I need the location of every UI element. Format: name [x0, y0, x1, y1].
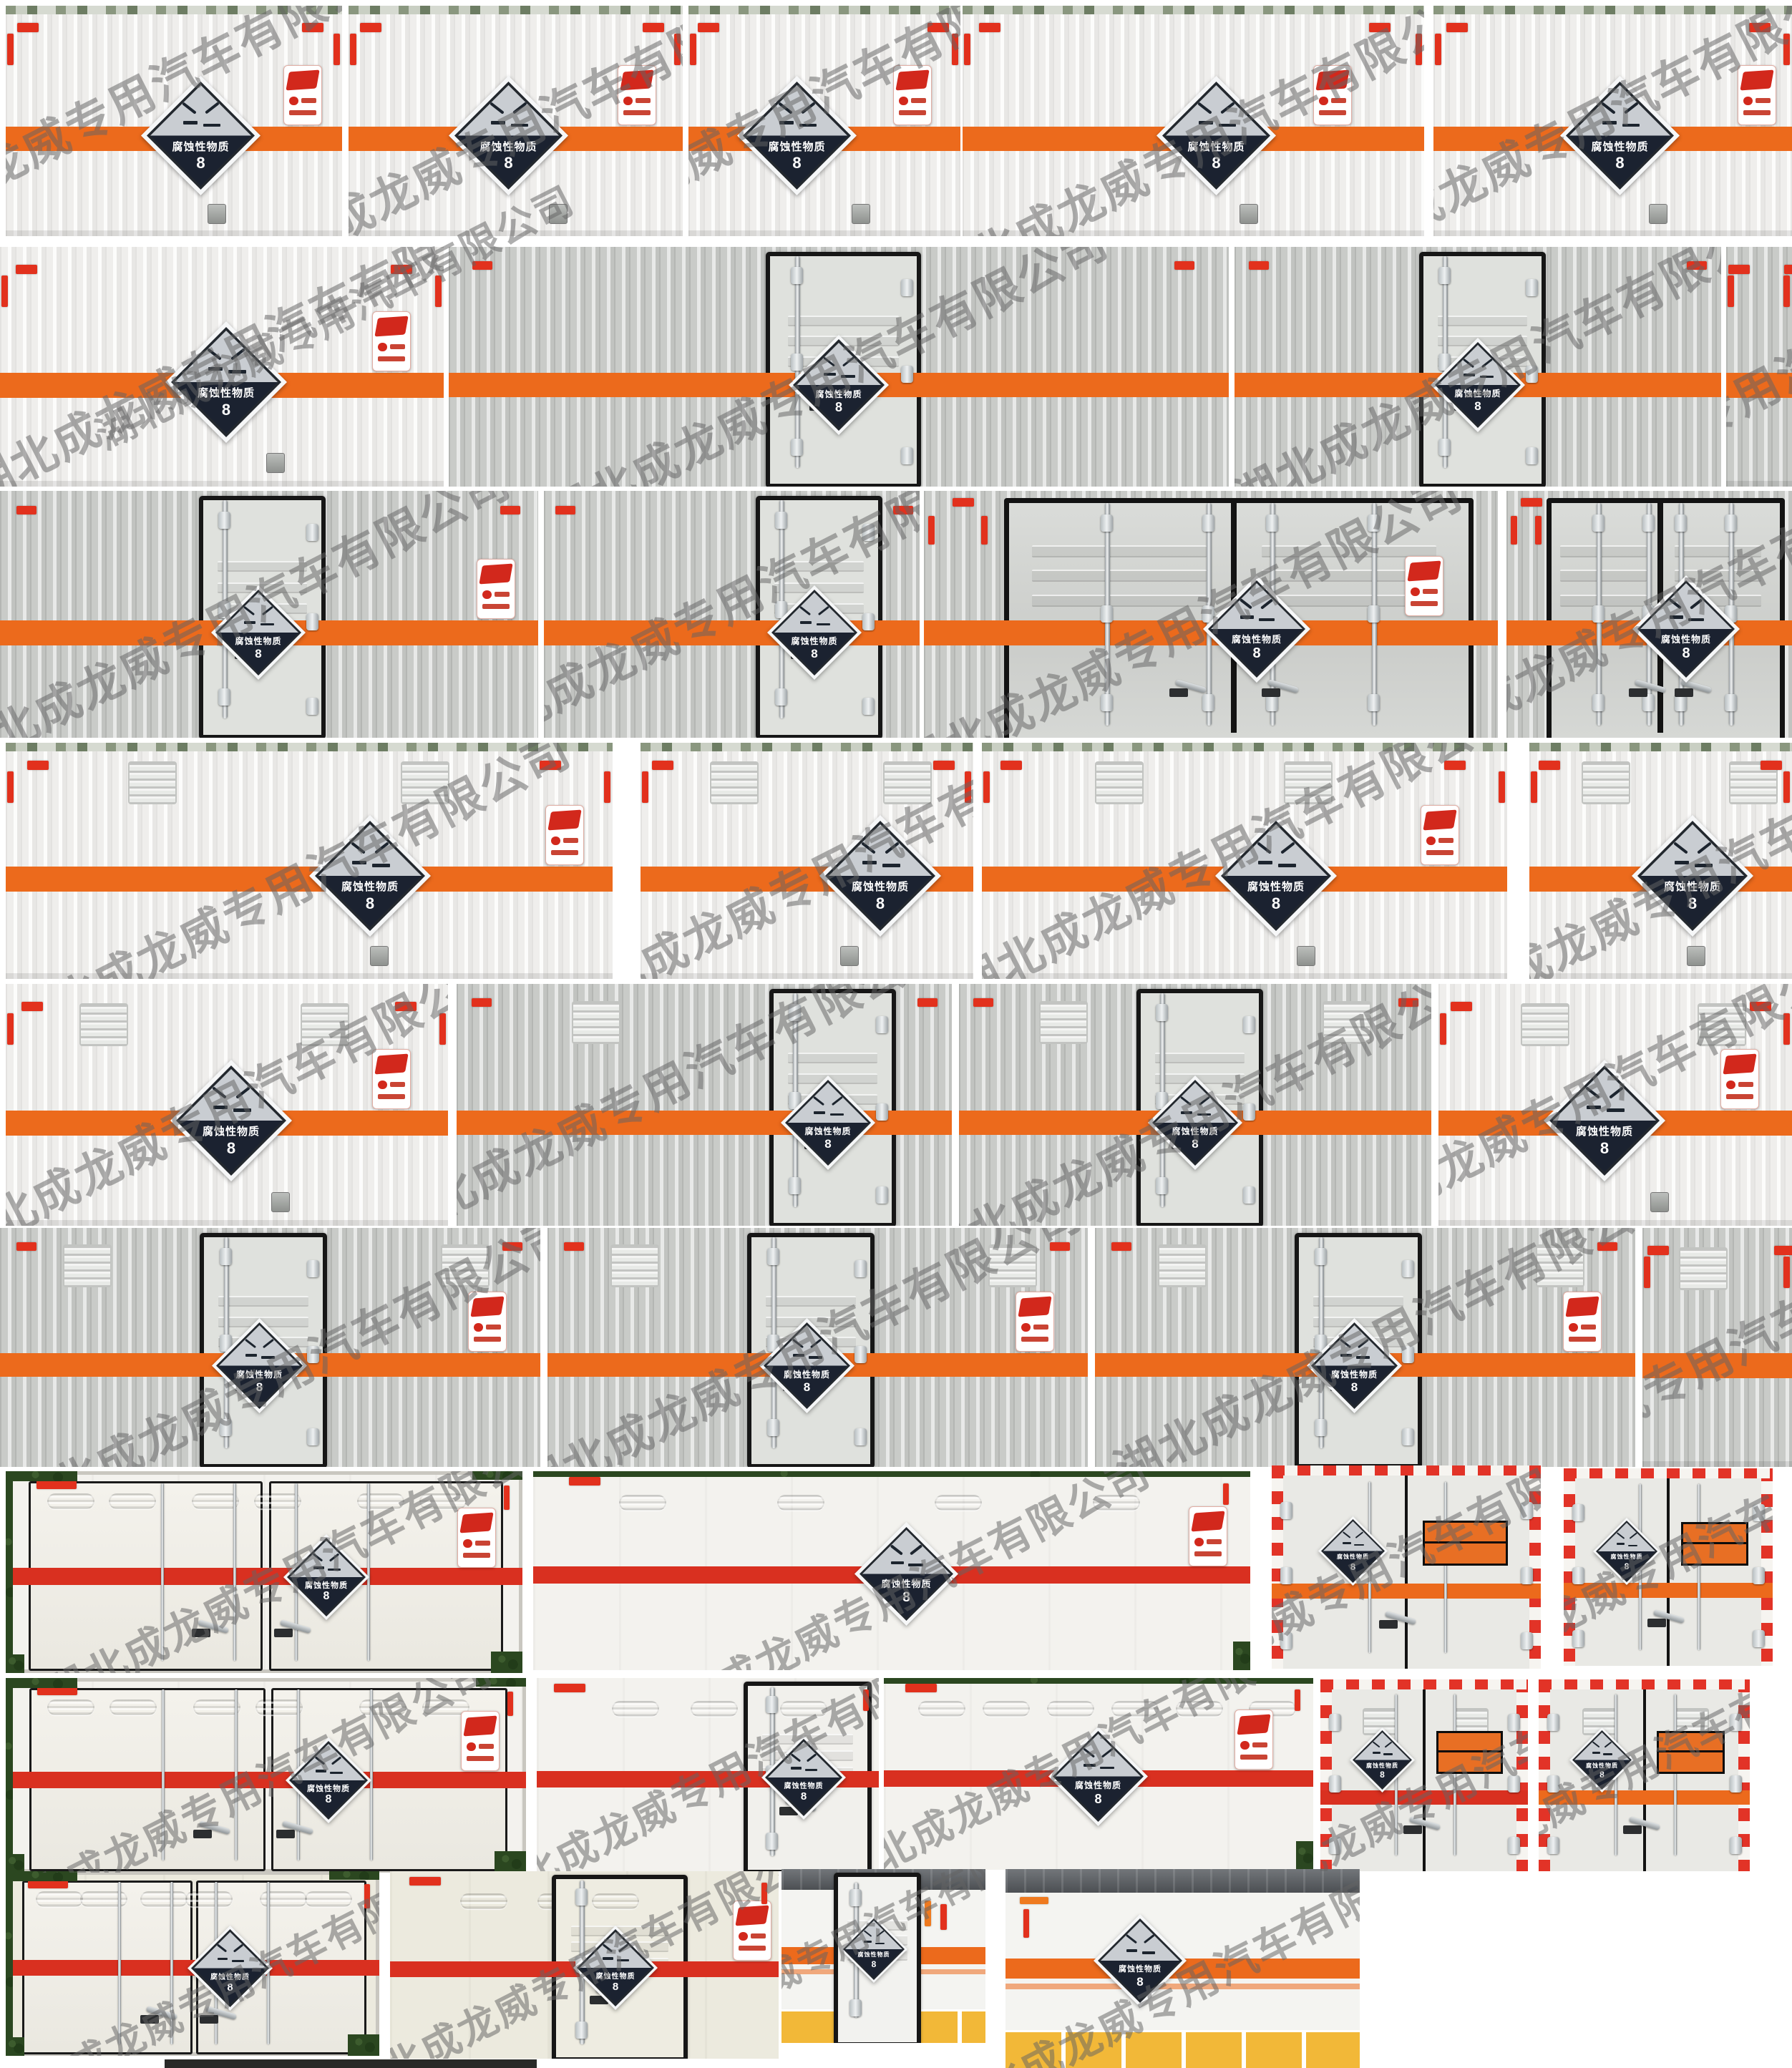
brand-logo-text-line: [1252, 1742, 1267, 1747]
truck-photo-r9c2: 腐蚀性物质8湖北成龙威专用汽车有限公司: [390, 1871, 779, 2059]
box-bottom-rail: [1433, 230, 1792, 236]
brand-logo-text-line: [289, 110, 316, 115]
hazard-placard-class8: 腐蚀性物质8: [1203, 575, 1310, 683]
placard-face: 腐蚀性物质8: [829, 824, 932, 927]
red-reflector: [604, 771, 610, 803]
pictogram-base: [233, 1108, 250, 1111]
red-reflector: [1783, 771, 1790, 803]
pictogram-base: [1084, 1764, 1096, 1767]
red-reflector: [16, 506, 36, 514]
truck-photo-r4c1: 腐蚀性物质8湖北成龙威专用汽车有限公司: [6, 743, 613, 979]
brand-logo-text-line: [751, 1933, 766, 1938]
placard-face: 腐蚀性物质8: [1224, 824, 1328, 927]
placard-label: 腐蚀性物质: [1323, 1553, 1383, 1561]
lock-rod-guide: [1329, 1714, 1341, 1731]
lock-rod-guide: [1329, 1775, 1341, 1793]
red-reflector: [1440, 1013, 1446, 1045]
pictogram-base: [791, 1767, 801, 1770]
pictogram-base: [244, 621, 255, 624]
red-reflector: [1023, 1909, 1029, 1938]
lock-rod-guide: [1753, 1567, 1765, 1584]
brand-logo-mark: [620, 70, 654, 91]
lock-rod-guide: [775, 688, 787, 706]
foliage: [329, 1871, 379, 1880]
brand-logo-text-line: [378, 1094, 404, 1099]
stamped-vent-icon: [918, 1701, 965, 1717]
hazard-placard-class8: 腐蚀性物质8: [141, 76, 260, 195]
corrosion-pictogram-icon: [812, 1095, 844, 1114]
hazard-placard-class8: 腐蚀性物质8: [789, 335, 889, 435]
truck-photo-r1c3: 腐蚀性物质8湖北成龙威专用汽车有限公司: [688, 6, 960, 236]
red-reflector: [302, 23, 323, 32]
pictogram-base: [1100, 1767, 1114, 1770]
pictogram-base: [1688, 618, 1703, 621]
lock-rod-guide: [767, 1419, 779, 1436]
stamped-vent-icon: [305, 1891, 352, 1907]
lock-rod-guide: [876, 1186, 888, 1204]
brand-logo-sticker: [283, 65, 322, 125]
red-reflector: [1, 275, 8, 307]
brand-logo-text-line: [1426, 850, 1453, 855]
brand-logo-emblem: [623, 97, 632, 105]
louver-vent-icon: [1323, 1001, 1371, 1044]
louver-vent-icon: [1521, 1003, 1569, 1046]
stamped-vent-icon: [1093, 1495, 1140, 1511]
lock-rod-guide: [876, 1103, 888, 1121]
reflective-stripe: [1726, 373, 1792, 398]
lock-rod-guide: [1402, 1346, 1414, 1363]
pictogram-base: [1603, 1753, 1612, 1755]
red-reflector: [16, 265, 37, 274]
lock-rod-guide: [306, 613, 318, 630]
brand-logo-emblem: [1743, 97, 1752, 105]
red-reflector: [360, 23, 381, 32]
placard-face: 腐蚀性物质8: [1574, 1732, 1630, 1787]
brand-logo-text-line: [1423, 589, 1438, 594]
door-latch: [271, 1192, 290, 1212]
corrosion-pictogram-icon: [1615, 1531, 1638, 1545]
red-reflector: [1783, 34, 1790, 65]
truck-photo-r4c2: 腐蚀性物质8湖北成龙威专用汽车有限公司: [641, 743, 973, 979]
brand-logo-sticker: [733, 1901, 771, 1961]
stamped-vent-icon: [109, 1699, 157, 1715]
roller-shutter-rail: [1005, 1869, 1360, 1893]
truck-photo-r8c4: 腐蚀性物质8湖北成龙威专用汽车有限公司: [1320, 1679, 1528, 1871]
door-latch: [852, 204, 870, 224]
truck-photo-r9c4: 腐蚀性物质8湖北成龙威专用汽车有限公司: [1005, 1869, 1360, 2068]
reflective-stripe: [6, 1568, 522, 1585]
lock-rod-guide: [1592, 605, 1604, 623]
brand-logo-text-line: [467, 1756, 493, 1761]
background-trees: [1433, 6, 1792, 14]
background-trees: [6, 743, 613, 751]
red-reflector: [500, 506, 520, 514]
red-reflector: [333, 34, 340, 65]
stamped-vent-icon: [1047, 1701, 1094, 1717]
louver-vent-icon: [301, 1003, 349, 1046]
brand-logo-emblem: [739, 1932, 747, 1941]
pictogram-base: [260, 623, 274, 625]
hazard-placard-class8: 腐蚀性物质8: [165, 321, 287, 443]
placard-face: 腐蚀性物质8: [797, 343, 881, 427]
red-reflector: [7, 1013, 14, 1045]
stamped-vent-icon: [780, 1701, 827, 1717]
hazard-placard-class8: 腐蚀性物质8: [1350, 1727, 1415, 1793]
red-reflector: [928, 516, 935, 545]
placard-face: 腐蚀性物质8: [180, 1069, 283, 1172]
lock-rod-guide: [1753, 1504, 1765, 1521]
blank-orange-placard: [1681, 1522, 1748, 1566]
red-reflector: [981, 516, 988, 545]
background-trees: [641, 743, 973, 751]
red-reflector: [554, 1684, 585, 1692]
background-trees: [982, 743, 1507, 751]
red-reflector: [952, 34, 958, 65]
hazard-placard-class8: 腐蚀性物质8: [170, 1060, 292, 1181]
red-reflector: [1784, 265, 1792, 274]
red-reflector: [1728, 275, 1734, 307]
corrosion-pictogram-icon: [791, 1337, 823, 1357]
corrosion-pictogram-icon: [1338, 1337, 1370, 1357]
louver-vent-icon: [1158, 1244, 1207, 1287]
pictogram-base: [328, 1569, 340, 1571]
blank-placard-divider: [1683, 1542, 1746, 1544]
truck-photo-r2c1: 腐蚀性物质8湖北成龙威专用汽车有限公司: [0, 247, 444, 487]
box-bottom-rail: [349, 230, 683, 236]
door-latch: [1650, 1192, 1669, 1212]
foliage: [495, 1851, 526, 1873]
truck-photo-r8c5: 腐蚀性物质8湖北成龙威专用汽车有限公司: [1539, 1679, 1750, 1871]
door-center-seam: [1405, 1476, 1408, 1669]
foliage: [1233, 1642, 1250, 1670]
lock-rod-guide: [854, 1428, 867, 1445]
lock-rod-guide: [1202, 514, 1214, 532]
brand-logo-emblem: [378, 343, 386, 351]
brand-logo-text-line: [486, 1325, 501, 1330]
lock-rod-guide: [1675, 514, 1687, 532]
red-reflector: [409, 1877, 441, 1886]
pictogram-base: [1340, 1354, 1352, 1357]
pictogram-base: [891, 1561, 904, 1564]
red-reflector: [893, 506, 913, 514]
red-reflector: [1398, 998, 1418, 1007]
hazard-placard-class8: 腐蚀性物质8: [1156, 76, 1276, 195]
red-reflector: [643, 23, 664, 32]
lock-rod-guide: [766, 1696, 778, 1713]
lock-rod-guide: [849, 1889, 862, 1906]
door-rib: [1438, 316, 1527, 326]
placard-face: 腐蚀性物质8: [175, 331, 278, 434]
corrosion-pictogram-icon: [789, 1752, 818, 1770]
brand-logo-text-line: [378, 356, 404, 361]
red-reflector: [7, 34, 14, 65]
louver-vent-icon: [401, 761, 449, 804]
foliage: [6, 1871, 13, 2056]
brand-logo-mark: [1723, 1054, 1757, 1075]
lock-rod-guide: [1508, 1714, 1520, 1731]
brand-logo-mark: [1740, 70, 1774, 91]
red-reflector: [979, 23, 1000, 32]
brand-logo-text-line: [1569, 1337, 1595, 1342]
stamped-vent-icon: [140, 1891, 188, 1907]
stamped-vent-icon: [612, 1701, 659, 1717]
red-reflector: [364, 1884, 370, 1908]
placard-face: 腐蚀性物质8: [219, 1325, 300, 1406]
orange-reflector: [1020, 1897, 1048, 1904]
placard-label: 腐蚀性物质: [1598, 1553, 1655, 1561]
truck-photo-r7c2: 腐蚀性物质8湖北成龙威专用汽车有限公司: [533, 1471, 1250, 1670]
red-reflector: [1416, 34, 1422, 65]
corrosion-pictogram-icon: [1255, 840, 1297, 865]
red-reflector: [652, 761, 673, 770]
red-reflector: [16, 1242, 36, 1251]
stamped-vent-icon: [1176, 1701, 1223, 1717]
lock-rod-guide: [1438, 267, 1451, 284]
red-reflector: [1783, 275, 1790, 307]
brand-logo-sticker: [1738, 65, 1776, 125]
louver-vent-icon: [883, 761, 932, 804]
lock-rod-guide: [901, 366, 913, 383]
pictogram-base: [232, 1960, 244, 1962]
brand-logo-text-line: [482, 604, 509, 609]
brand-logo-text-line: [390, 1082, 405, 1087]
pictogram-base: [805, 1769, 817, 1771]
louver-vent-icon: [63, 1244, 112, 1287]
brand-logo-mark: [471, 1297, 505, 1317]
pictogram-base: [814, 1111, 825, 1114]
lock-rod-guide: [1243, 1186, 1255, 1204]
red-reflector: [1750, 1002, 1771, 1011]
red-reflector: [940, 1904, 947, 1930]
red-reflector: [1521, 498, 1542, 507]
lock-rod-guide: [1202, 694, 1214, 711]
door-latch: [1240, 204, 1258, 224]
placard-face: 腐蚀性物质8: [1569, 85, 1670, 186]
lock-rod-guide: [1280, 1632, 1292, 1649]
door-lock-rod: [1698, 1484, 1700, 1650]
brand-logo-sticker: [457, 1508, 496, 1568]
truck-photo-r8c2: 腐蚀性物质8湖北成龙威专用汽车有限公司: [537, 1678, 879, 1871]
lock-rod-guide: [1508, 1775, 1520, 1793]
truck-photo-r3c4: 腐蚀性物质8湖北成龙威专用汽车有限公司: [1506, 491, 1792, 738]
corrosion-pictogram-icon: [1238, 597, 1275, 619]
lock-rod-guide: [1547, 1714, 1559, 1731]
red-reflector: [502, 1242, 522, 1251]
lock-rod-guide: [1329, 1837, 1341, 1854]
pictogram-base: [491, 121, 505, 125]
corrosion-pictogram-icon: [822, 356, 855, 376]
brand-logo-text-line: [1756, 98, 1771, 103]
corrosion-pictogram-icon: [860, 840, 901, 865]
red-reflector: [1539, 761, 1560, 770]
pictogram-base: [1356, 1356, 1370, 1359]
red-reflector: [1647, 1246, 1669, 1255]
pictogram-base: [1181, 1111, 1192, 1114]
placard-face: 腐蚀性物质8: [1355, 1732, 1410, 1787]
door-lock-rod: [118, 1882, 121, 2044]
door-rib: [1560, 545, 1647, 557]
lock-rod-guide: [1521, 1632, 1533, 1649]
brand-logo-text-line: [1033, 1325, 1048, 1330]
brand-logo-sticker: [1189, 1506, 1227, 1566]
hazard-placard-class8: 腐蚀性物质8: [212, 1318, 307, 1413]
lock-rod-guide: [1508, 1837, 1520, 1854]
louver-vent-icon: [79, 1003, 128, 1046]
lock-rod-guide: [1572, 1567, 1584, 1584]
door-lock-rod: [1674, 1694, 1677, 1855]
brand-logo-text-line: [1738, 1082, 1753, 1087]
box-bottom-rail: [1726, 481, 1792, 487]
lock-rod-guide: [306, 698, 318, 715]
stamped-vent-icon: [983, 1701, 1030, 1717]
red-reflector: [917, 998, 938, 1007]
lock-rod-guide: [1725, 694, 1737, 711]
truck-photo-r7c1: 腐蚀性物质8湖北成龙威专用汽车有限公司: [6, 1471, 522, 1673]
red-reflector: [1597, 1242, 1617, 1251]
pictogram-base: [261, 1356, 275, 1359]
blank-placard-divider: [1425, 1541, 1506, 1543]
lock-rod-guide: [1438, 439, 1451, 456]
reflective-stripe: [1642, 1353, 1792, 1378]
brand-logo-mark: [1192, 1511, 1225, 1532]
pictogram-base: [245, 1354, 257, 1357]
reflective-stripe: [1539, 1790, 1750, 1805]
placard-face: 腐蚀性物质8: [318, 824, 422, 927]
door-rib: [774, 561, 864, 572]
hazard-placard-class8: 腐蚀性物质8: [309, 815, 431, 937]
pictogram-base: [1587, 1106, 1602, 1109]
door-handle-base: [1262, 688, 1280, 697]
hazard-placard-class8: 腐蚀性物质8: [1632, 575, 1740, 683]
blank-orange-placard: [1657, 1731, 1725, 1774]
lock-rod-guide: [1730, 1775, 1742, 1793]
truck-photo-r2c4: 湖北成龙威专用汽车有限公司: [1726, 247, 1792, 487]
lock-rod-guide: [1368, 514, 1380, 532]
brand-logo-text-line: [636, 98, 651, 103]
red-reflector: [1761, 761, 1782, 770]
corrosion-pictogram-icon: [1371, 1741, 1393, 1754]
pictogram-base: [1622, 124, 1640, 127]
brand-logo-emblem: [378, 1081, 386, 1089]
brand-logo-mark: [479, 564, 513, 585]
corrosion-pictogram-icon: [243, 605, 275, 624]
truck-photo-r1c4: 腐蚀性物质8湖北成龙威专用汽车有限公司: [963, 6, 1424, 236]
red-reflector: [905, 1684, 937, 1692]
red-reflector: [933, 761, 955, 770]
louver-vent-icon: [1679, 1247, 1728, 1290]
pictogram-base: [1219, 124, 1236, 127]
lock-rod-guide: [1315, 1248, 1327, 1265]
hazard-placard-class8: 腐蚀性物质8: [188, 1926, 273, 2011]
red-reflector: [555, 506, 575, 514]
brand-logo-sticker: [545, 805, 584, 865]
foliage: [472, 1471, 522, 1480]
lock-rod-guide: [575, 1888, 588, 1906]
placard-face: 腐蚀性物质8: [1314, 1325, 1395, 1406]
brand-logo-sticker: [1016, 1292, 1054, 1352]
pictogram-base: [208, 367, 223, 371]
brand-logo-mark: [464, 1716, 497, 1737]
red-reflector: [540, 761, 561, 770]
placard-face: 腐蚀性物质8: [150, 85, 251, 186]
pictogram-base: [809, 1356, 822, 1359]
placard-face: 腐蚀性物质8: [1438, 345, 1518, 425]
lock-rod-guide: [1572, 1504, 1584, 1521]
reflective-frame-bar: [1272, 1465, 1541, 1476]
truck-photo-r4c4: 腐蚀性物质8湖北成龙威专用汽车有限公司: [1529, 743, 1792, 979]
brand-logo-sticker: [468, 1292, 507, 1352]
door-rib: [788, 1053, 877, 1063]
lock-rod-guide: [1547, 1837, 1559, 1854]
door-handle-base: [1629, 688, 1647, 697]
truck-photo-r1c1: 腐蚀性物质8湖北成龙威专用汽车有限公司: [6, 6, 342, 236]
box-bottom-rail: [1529, 973, 1792, 979]
placard-face: 腐蚀性物质8: [292, 1744, 365, 1817]
brand-logo-mark: [1237, 1715, 1271, 1735]
reflective-stripe: [1272, 1584, 1541, 1599]
lock-rod-guide: [1368, 605, 1380, 623]
brand-logo-text-line: [301, 98, 316, 103]
louver-vent-icon: [1095, 761, 1144, 804]
brand-logo-mark: [1408, 561, 1441, 582]
red-reflector: [1050, 1242, 1070, 1251]
louver-vent-icon: [441, 1244, 490, 1287]
foliage: [1296, 1841, 1313, 1870]
hazard-placard-class8: 腐蚀性物质8: [1094, 1914, 1187, 2007]
corrosion-pictogram-icon: [1599, 100, 1640, 125]
red-reflector: [1728, 265, 1750, 274]
lock-rod-guide: [1547, 1775, 1559, 1793]
placard-face: 腐蚀性物质8: [458, 85, 559, 186]
foliage: [13, 1871, 77, 1881]
red-reflector: [983, 771, 990, 803]
foliage: [348, 2034, 379, 2056]
door-latch: [1687, 946, 1705, 966]
pictogram-base: [1259, 618, 1274, 621]
corrosion-pictogram-icon: [889, 1543, 924, 1564]
lock-rod-guide: [789, 1004, 801, 1021]
door-handle-base: [1403, 1825, 1422, 1834]
pictogram-base: [817, 623, 830, 625]
red-reflector: [472, 261, 492, 270]
lock-rod-guide: [775, 512, 787, 529]
lock-rod-guide: [218, 512, 230, 529]
lock-rod-guide: [218, 688, 230, 706]
brand-logo-mark: [896, 70, 930, 91]
brand-logo-text-line: [1331, 98, 1346, 103]
door-latch: [266, 453, 285, 473]
truck-photo-r5c2: 腐蚀性物质8湖北成龙威专用汽车有限公司: [457, 984, 952, 1226]
red-reflector: [391, 265, 412, 274]
hazard-placard-class8: 腐蚀性物质8: [573, 1926, 658, 2010]
foliage: [491, 1652, 522, 1673]
pictogram-base: [228, 370, 245, 373]
door-center-seam: [1423, 1689, 1426, 1871]
truck-photo-r7c3: 腐蚀性物质8湖北成龙威专用汽车有限公司: [1272, 1465, 1541, 1669]
brand-logo-emblem: [1426, 837, 1435, 845]
corrosion-pictogram-icon: [349, 840, 391, 865]
brand-logo-mark: [375, 316, 409, 337]
corrosion-pictogram-icon: [1584, 1085, 1625, 1110]
foliage: [13, 1678, 77, 1688]
watermark: 湖北成龙威专用汽车有限公司: [6, 743, 581, 979]
corrosion-pictogram-icon: [210, 1085, 252, 1110]
hazard-placard-class8: 腐蚀性物质8: [449, 76, 568, 195]
red-reflector: [504, 1486, 510, 1510]
reflective-stripe: [6, 1772, 526, 1788]
red-reflector: [439, 1013, 446, 1045]
red-reflector: [1499, 771, 1505, 803]
